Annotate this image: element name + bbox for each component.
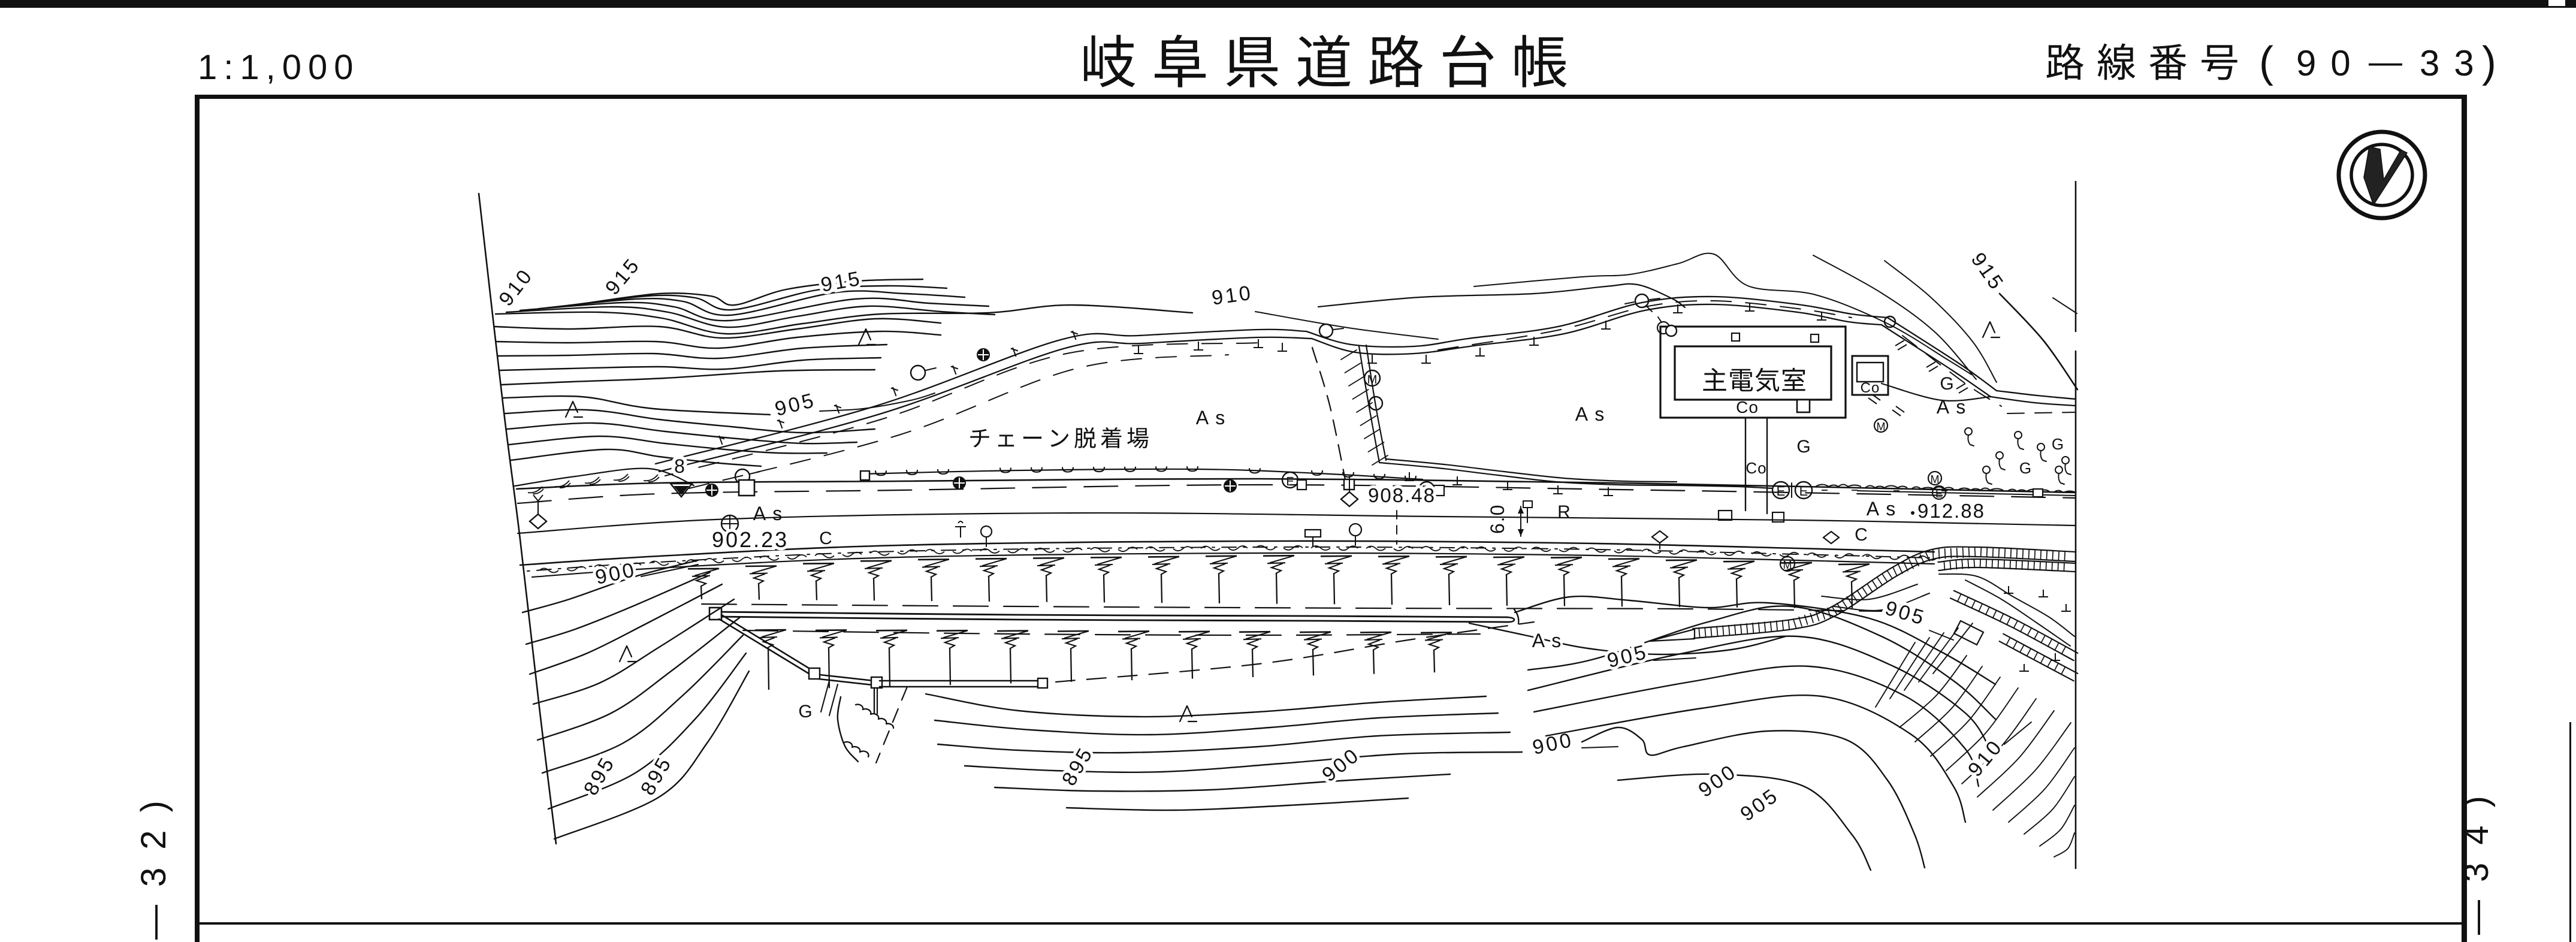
svg-text:): ) (2482, 38, 2496, 86)
svg-text:—34): —34) (2457, 778, 2496, 935)
svg-text:915: 915 (1967, 249, 2009, 295)
svg-text:902.23: 902.23 (712, 527, 789, 552)
svg-text:M: M (1367, 373, 1378, 387)
svg-text:910: 910 (494, 264, 537, 310)
svg-text:M: M (1931, 473, 1940, 485)
svg-text:900: 900 (1530, 729, 1575, 759)
svg-text:A s: A s (1532, 630, 1562, 651)
svg-text:900: 900 (1695, 760, 1741, 802)
svg-text:905: 905 (772, 389, 818, 421)
svg-text:33: 33 (2420, 43, 2489, 83)
svg-text:G: G (798, 702, 812, 721)
svg-text:895: 895 (636, 752, 677, 799)
svg-text:G: G (2052, 435, 2064, 453)
svg-text:A s: A s (1196, 407, 1226, 428)
svg-text:Co: Co (1745, 459, 1766, 477)
svg-text:6.0: 6.0 (1487, 504, 1508, 534)
svg-text:A s: A s (1575, 403, 1605, 425)
svg-text:910: 910 (1210, 282, 1254, 310)
svg-text:R: R (1557, 502, 1571, 522)
svg-text:Co: Co (1861, 380, 1880, 396)
svg-text:A s: A s (1867, 498, 1896, 520)
svg-text:915: 915 (819, 267, 863, 296)
svg-text:M: M (1877, 421, 1886, 433)
svg-text:—: — (2369, 43, 2402, 80)
svg-text:Co: Co (1736, 398, 1759, 416)
svg-text:895: 895 (1058, 742, 1098, 790)
svg-text:C: C (1855, 525, 1868, 545)
svg-text:910: 910 (1964, 735, 2007, 781)
svg-text:90: 90 (2296, 43, 2365, 83)
svg-text:912.88: 912.88 (1917, 500, 1985, 522)
svg-text:905: 905 (1737, 784, 1783, 826)
svg-text:(: ( (2259, 38, 2273, 86)
svg-text:8: 8 (674, 455, 685, 477)
svg-text:G: G (2019, 459, 2031, 477)
svg-text:E: E (1286, 475, 1294, 488)
svg-text:G: G (1940, 374, 1953, 394)
svg-text:905: 905 (1605, 641, 1650, 672)
svg-text:A s: A s (1937, 396, 1967, 418)
svg-text:1:1,000: 1:1,000 (198, 48, 360, 87)
svg-text:C: C (819, 529, 832, 548)
svg-text:900: 900 (593, 558, 638, 589)
svg-text:—32): —32) (134, 783, 173, 940)
svg-text:908.48: 908.48 (1368, 484, 1436, 506)
svg-text:A s: A s (753, 503, 783, 524)
svg-text:G: G (1796, 437, 1810, 457)
svg-text:915: 915 (601, 253, 645, 299)
